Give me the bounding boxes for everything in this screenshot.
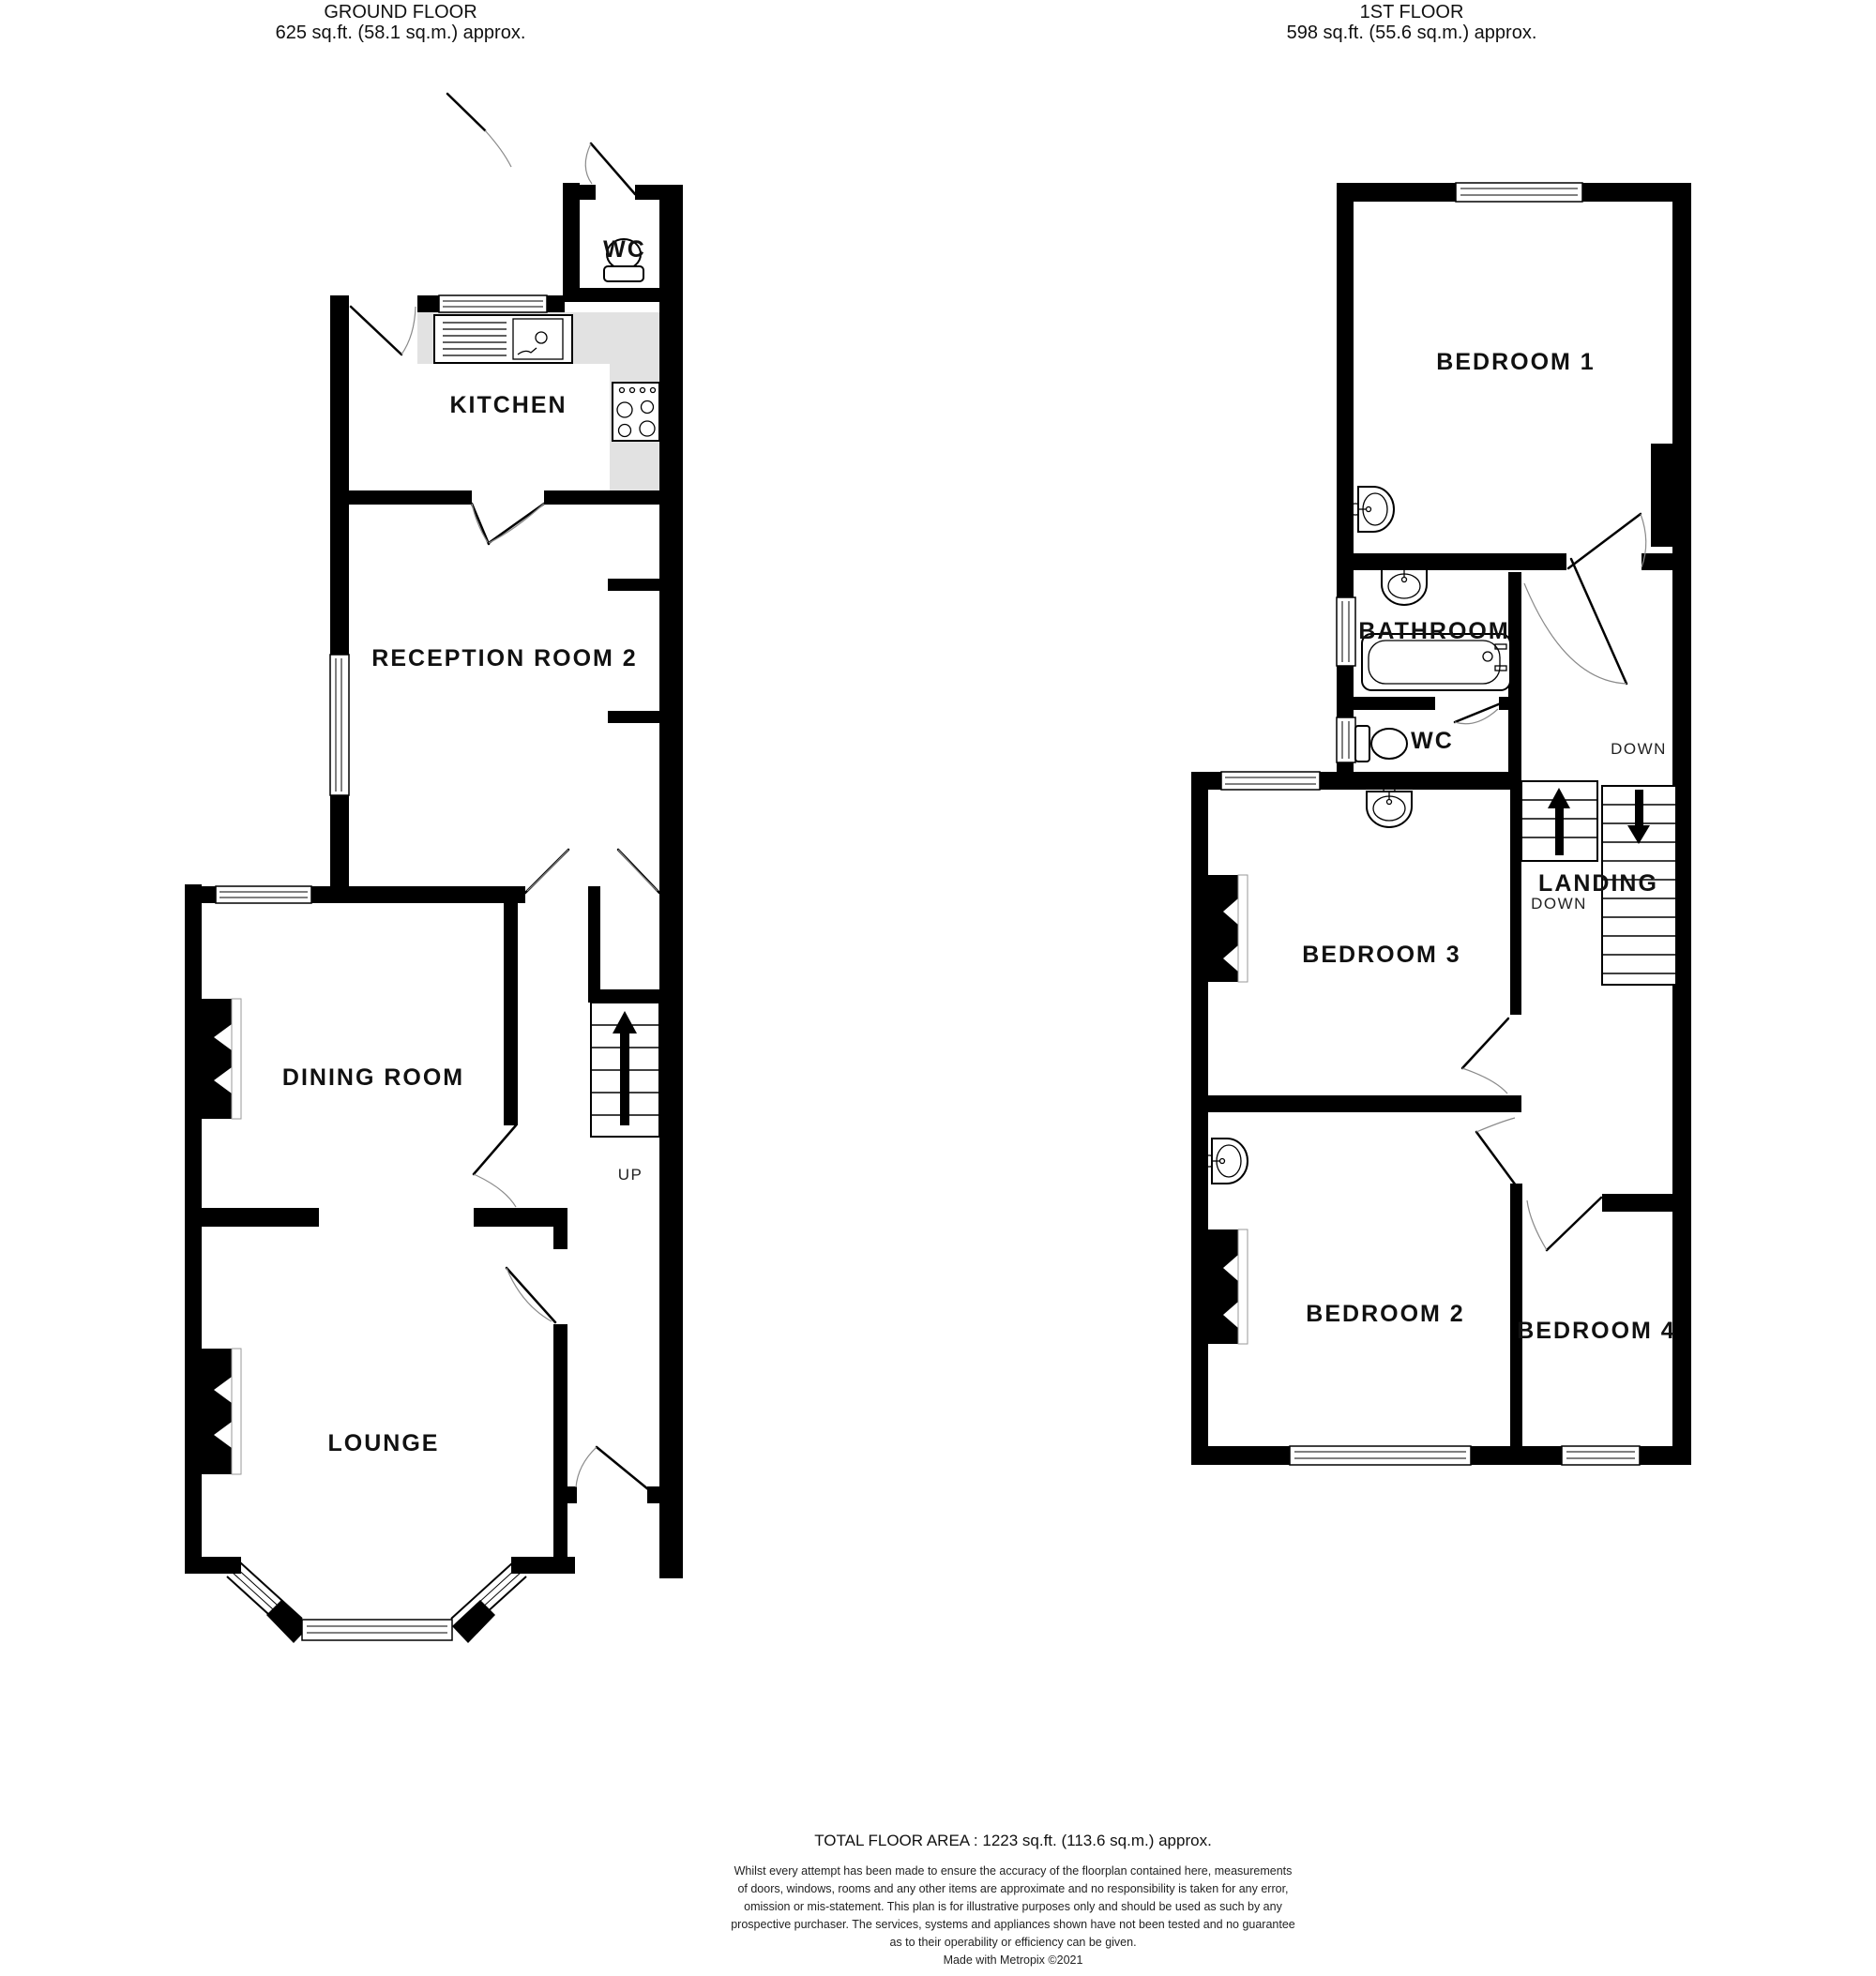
bedroom3-door	[1462, 1018, 1508, 1094]
dining-chimney-breast	[202, 999, 241, 1119]
bathroom-label: BATHROOM	[1358, 618, 1509, 644]
stairs-up	[591, 1003, 659, 1137]
kitchen-label: KITCHEN	[449, 392, 567, 418]
total-floor-area: TOTAL FLOOR AREA : 1223 sq.ft. (113.6 sq…	[814, 1832, 1212, 1849]
bedroom2-sink-icon	[1206, 1139, 1248, 1184]
disclaimer-line: prospective purchaser. The services, sys…	[731, 1918, 1295, 1931]
bathroom-lobby-door	[1524, 559, 1626, 684]
kitchen-sink-icon	[434, 315, 572, 363]
bedroom4-door	[1527, 1198, 1601, 1250]
reception-window	[330, 655, 349, 795]
down-label-top: DOWN	[1611, 740, 1667, 758]
stairs-landing-up-flight	[1521, 781, 1597, 861]
bedroom3-sink-icon	[1367, 786, 1412, 827]
bay-window-center-pane	[302, 1620, 452, 1640]
dining-hall-door	[474, 1125, 516, 1207]
dining-window	[216, 886, 311, 903]
bedroom2-door	[1476, 1118, 1516, 1185]
bedroom3-label: BEDROOM 3	[1302, 942, 1460, 968]
footer: TOTAL FLOOR AREA : 1223 sq.ft. (113.6 sq…	[731, 1832, 1295, 1967]
lounge-hall-door	[507, 1268, 555, 1322]
up-label: UP	[618, 1166, 643, 1184]
ground-floor-area: 625 sq.ft. (58.1 sq.m.) approx.	[276, 23, 526, 43]
bathroom-sink-icon	[1382, 564, 1427, 605]
bathroom-window	[1337, 597, 1355, 666]
disclaimer-line: of doors, windows, rooms and any other i…	[737, 1882, 1288, 1895]
bedroom2-label: BEDROOM 2	[1306, 1301, 1464, 1327]
bedroom1-window	[1456, 183, 1582, 202]
kitchen-door	[351, 307, 416, 354]
ground-floor-title: GROUND FLOOR	[324, 2, 477, 23]
wc-label: WC	[603, 236, 646, 263]
lounge-chimney-breast	[202, 1349, 241, 1474]
first-floor-plan: BEDROOM 1 BATHROOM WC DOWN LANDING DOWN …	[1191, 183, 1691, 1465]
bay-window	[227, 1562, 526, 1643]
reception-room-2-label: RECEPTION ROOM 2	[371, 645, 637, 671]
disclaimer-line: omission or mis-statement. This plan is …	[744, 1900, 1282, 1913]
wc-window	[1337, 717, 1355, 762]
bedroom2-window	[1290, 1446, 1471, 1465]
landing-label: LANDING	[1538, 870, 1658, 897]
bedroom1-sink-icon	[1353, 487, 1394, 532]
bedroom3-chimney-breast	[1208, 875, 1248, 982]
bedroom4-label: BEDROOM 4	[1517, 1318, 1675, 1344]
wc-door	[1455, 703, 1501, 724]
bay-corner-right	[452, 1600, 495, 1643]
ground-floor-header: GROUND FLOOR 625 sq.ft. (58.1 sq.m.) app…	[276, 2, 526, 43]
down-label-bottom: DOWN	[1531, 895, 1587, 913]
bedroom2-chimney-breast	[1208, 1229, 1248, 1344]
kitchen-window	[439, 295, 547, 312]
bedroom3-window	[1221, 772, 1320, 790]
lounge-label: LOUNGE	[328, 1430, 440, 1456]
metropix-credit: Made with Metropix ©2021	[944, 1953, 1083, 1967]
disclaimer-line: Whilst every attempt has been made to en…	[734, 1864, 1293, 1878]
first-floor-title: 1ST FLOOR	[1360, 2, 1464, 23]
ground-floor-walls	[185, 183, 683, 1578]
hob-icon	[613, 383, 659, 441]
ground-floor-plan: WC KITCHEN RECEPTION ROOM 2 DINING ROOM …	[185, 94, 683, 1643]
dining-room-label: DINING ROOM	[282, 1064, 464, 1091]
floorplan-canvas: GROUND FLOOR 625 sq.ft. (58.1 sq.m.) app…	[0, 0, 1876, 1976]
disclaimer-line: as to their operability or efficiency ca…	[889, 1936, 1136, 1949]
bedroom1-label: BEDROOM 1	[1436, 349, 1595, 375]
bedroom1-door	[1568, 514, 1646, 568]
wc-label: WC	[1411, 728, 1454, 754]
wc-toilet-icon	[1355, 726, 1407, 762]
front-door	[576, 1447, 648, 1489]
first-floor-area: 598 sq.ft. (55.6 sq.m.) approx.	[1287, 23, 1537, 43]
bedroom4-window	[1562, 1446, 1640, 1465]
first-floor-header: 1ST FLOOR 598 sq.ft. (55.6 sq.m.) approx…	[1287, 2, 1537, 43]
kitchen-reception-double-door	[472, 504, 544, 544]
side-return-door	[447, 94, 511, 167]
